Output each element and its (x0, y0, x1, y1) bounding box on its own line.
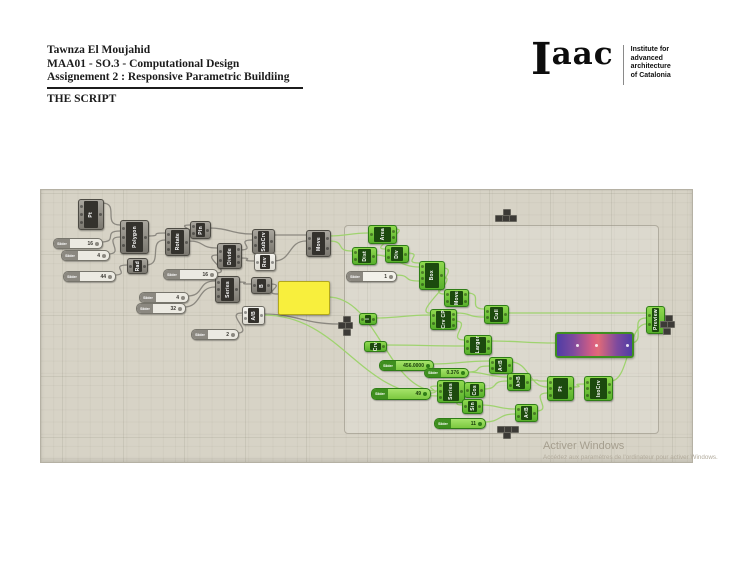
input-port[interactable] (308, 237, 311, 240)
slider-cap: Slider (347, 272, 363, 281)
output-port[interactable] (143, 265, 146, 268)
iaac-logo: I aac Institute foradvancedarchitectureo… (531, 43, 671, 85)
output-port[interactable] (460, 390, 463, 393)
node-div[interactable]: Div (385, 245, 409, 263)
header-divider (47, 87, 303, 89)
input-port[interactable] (122, 236, 125, 239)
node-label: Pln (198, 226, 204, 235)
number-slider[interactable]: Slider32 (136, 303, 186, 314)
slider-cap: Slider (164, 270, 180, 279)
input-port[interactable] (244, 311, 247, 314)
input-port[interactable] (421, 265, 424, 268)
output-port[interactable] (508, 364, 511, 367)
node-label: Move (316, 237, 322, 251)
node-rotate[interactable]: Rotate (165, 228, 190, 256)
input-port[interactable] (439, 390, 442, 393)
input-port[interactable] (387, 249, 390, 252)
output-port[interactable] (206, 229, 209, 232)
node-label: Sin (470, 402, 476, 411)
gradient-component[interactable] (555, 332, 634, 358)
output-port[interactable] (237, 255, 240, 258)
output-port[interactable] (569, 387, 572, 390)
input-port[interactable] (80, 221, 83, 224)
node-label: Divide (227, 248, 233, 265)
output-port[interactable] (608, 391, 611, 394)
node-crv-cp[interactable]: Crv CP (430, 309, 457, 330)
input-port[interactable] (122, 244, 125, 247)
slider-grip[interactable] (423, 392, 427, 396)
input-port[interactable] (464, 405, 467, 408)
input-port[interactable] (586, 394, 589, 397)
slider-cap: Slider (62, 251, 78, 260)
input-port[interactable] (192, 225, 195, 228)
input-port[interactable] (254, 244, 257, 247)
input-port[interactable] (219, 250, 222, 253)
input-port[interactable] (387, 256, 390, 259)
slider-grip[interactable] (210, 273, 214, 277)
slider-grip[interactable] (178, 307, 182, 311)
output-port[interactable] (267, 284, 270, 287)
node-label: I (365, 318, 371, 320)
collapsed-component[interactable] (503, 432, 511, 439)
node-label: Dist (362, 251, 368, 262)
node-label: Polygon (132, 226, 138, 248)
slider-grip[interactable] (231, 333, 235, 337)
number-slider[interactable]: Slider4 (61, 250, 110, 261)
input-port[interactable] (432, 314, 435, 317)
node-crv[interactable]: Crv (364, 341, 387, 352)
output-port[interactable] (392, 236, 395, 239)
input-port[interactable] (129, 265, 132, 268)
input-port[interactable] (549, 381, 552, 384)
input-port[interactable] (122, 227, 125, 230)
author-name: Tawnza El Moujahid (47, 44, 289, 58)
input-port[interactable] (308, 247, 311, 250)
iaac-wordmark: I aac (531, 43, 614, 77)
gradient-handle[interactable] (626, 344, 629, 347)
node-label: Preview (653, 309, 659, 330)
output-port[interactable] (504, 313, 507, 316)
node-a-b[interactable]: A<B (489, 357, 513, 374)
output-port[interactable] (440, 274, 443, 277)
output-port[interactable] (372, 255, 375, 258)
output-port[interactable] (487, 347, 490, 350)
input-port[interactable] (648, 323, 651, 326)
input-port[interactable] (486, 316, 489, 319)
slider-grip[interactable] (478, 422, 482, 426)
number-slider[interactable]: Slider16 (163, 269, 218, 280)
slider-grip[interactable] (108, 275, 112, 279)
header-block: Tawnza El Moujahid MAA01 - SO.3 - Comput… (47, 44, 289, 85)
collapsed-component[interactable] (509, 215, 517, 222)
node-pln[interactable]: Pln (190, 221, 211, 239)
number-slider[interactable]: Slider16 (53, 238, 103, 249)
node-rev[interactable]: Rev (254, 253, 276, 271)
input-port[interactable] (256, 261, 259, 264)
node-label: Pt (88, 212, 94, 218)
assignment-title: Assignement 2 : Responsive Parametric Bu… (47, 71, 289, 85)
number-slider[interactable]: Slider4 (139, 292, 189, 303)
output-port[interactable] (99, 213, 102, 216)
node-label: Series (225, 281, 231, 298)
input-port[interactable] (439, 384, 442, 387)
node-label: Series (448, 383, 454, 400)
node-label: Rotate (175, 233, 181, 250)
input-port[interactable] (586, 387, 589, 390)
output-port[interactable] (237, 261, 240, 264)
input-port[interactable] (517, 408, 520, 411)
node-divide[interactable]: Divide (217, 243, 242, 269)
node-label: Rad (135, 261, 141, 271)
output-port[interactable] (464, 293, 467, 296)
slider-grip[interactable] (95, 242, 99, 246)
slider-cap: Slider (140, 293, 156, 302)
logo-divider (623, 45, 624, 85)
input-port[interactable] (549, 394, 552, 397)
input-port[interactable] (217, 281, 220, 284)
output-port[interactable] (185, 241, 188, 244)
node-polygon[interactable]: Polygon (120, 220, 149, 254)
input-port[interactable] (466, 340, 469, 343)
node-label: Area (380, 228, 386, 240)
node-label: Move (454, 291, 460, 305)
input-port[interactable] (509, 377, 512, 380)
node-series[interactable]: Series (215, 276, 240, 303)
input-port[interactable] (254, 236, 257, 239)
input-port[interactable] (432, 322, 435, 325)
output-port[interactable] (608, 383, 611, 386)
node-pt[interactable]: Pt (547, 376, 574, 401)
collapsed-component[interactable] (345, 322, 353, 329)
input-port[interactable] (446, 300, 449, 303)
input-port[interactable] (80, 213, 83, 216)
slider-grip[interactable] (181, 296, 185, 300)
input-port[interactable] (586, 381, 589, 384)
slider-cap: Slider (54, 239, 70, 248)
node-rad[interactable]: Rad (127, 258, 148, 274)
slider-cap: Slider (372, 389, 388, 399)
input-port[interactable] (167, 241, 170, 244)
input-port[interactable] (466, 347, 469, 350)
node-larger[interactable]: Larger (464, 335, 492, 355)
number-slider[interactable]: Slider49 (371, 388, 431, 400)
logo-letters-aac: aac (552, 43, 614, 65)
input-port[interactable] (167, 248, 170, 251)
output-port[interactable] (271, 261, 274, 264)
node-label: A<B (498, 360, 504, 371)
input-port[interactable] (370, 233, 373, 236)
node-move[interactable]: Move (306, 230, 331, 257)
node-label: Box (429, 270, 435, 280)
output-port[interactable] (270, 240, 273, 243)
slider-cap: Slider (192, 330, 208, 339)
input-port[interactable] (517, 415, 520, 418)
node-label: A/B (251, 311, 257, 321)
output-port[interactable] (464, 300, 467, 303)
node-label: SubCrv (261, 232, 267, 252)
document-page: Tawnza El Moujahid MAA01 - SO.3 - Comput… (0, 0, 730, 572)
node-label: A<B (524, 407, 530, 418)
input-port[interactable] (167, 233, 170, 236)
slider-grip[interactable] (426, 364, 430, 368)
output-port[interactable] (487, 340, 490, 343)
output-port[interactable] (452, 313, 455, 316)
input-port[interactable] (192, 232, 195, 235)
output-port[interactable] (392, 230, 395, 233)
node-a-b[interactable]: A>B (507, 373, 531, 391)
output-port[interactable] (235, 288, 238, 291)
input-port[interactable] (509, 384, 512, 387)
output-port[interactable] (382, 345, 385, 348)
node-isocrv[interactable]: IsoCrv (584, 376, 613, 401)
node-label: Div (394, 250, 400, 259)
output-port[interactable] (372, 318, 375, 321)
node-label: B (259, 284, 265, 288)
activate-windows-subtext: Accédez aux paramètres de l'ordinateur p… (543, 454, 718, 461)
output-port[interactable] (452, 324, 455, 327)
panel-note[interactable] (278, 281, 330, 315)
node-cull[interactable]: Cull (484, 305, 509, 324)
logo-letter-i: I (531, 43, 552, 77)
slider-cap: Slider (64, 272, 80, 281)
gradient-handle[interactable] (595, 344, 598, 347)
activate-windows-watermark: Activer Windows (543, 440, 624, 452)
slider-cap: Slider (435, 419, 451, 428)
node-label: Cull (494, 309, 500, 320)
input-port[interactable] (421, 277, 424, 280)
input-port[interactable] (217, 295, 220, 298)
node-label: Rev (262, 257, 268, 267)
slider-cap: Slider (380, 361, 396, 370)
node-label: Larger (475, 336, 481, 353)
collapsed-component[interactable] (511, 426, 519, 433)
output-port[interactable] (480, 389, 483, 392)
node-area[interactable]: Area (368, 225, 397, 244)
output-port[interactable] (526, 381, 529, 384)
input-port[interactable] (80, 205, 83, 208)
input-port[interactable] (421, 271, 424, 274)
number-slider[interactable]: Slider0.376 (424, 368, 469, 378)
input-port[interactable] (354, 258, 357, 261)
slider-cap: Slider (137, 304, 153, 313)
output-port[interactable] (144, 236, 147, 239)
input-port[interactable] (466, 389, 469, 392)
node-b[interactable]: B (251, 277, 272, 294)
output-port[interactable] (326, 237, 329, 240)
node-series[interactable]: Series (437, 380, 465, 403)
input-port[interactable] (491, 367, 494, 370)
node-move[interactable]: Move (444, 289, 469, 307)
collapsed-component[interactable] (667, 321, 675, 328)
slider-cap: Slider (425, 369, 441, 377)
input-port[interactable] (491, 361, 494, 364)
input-port[interactable] (361, 318, 364, 321)
node-sin[interactable]: Sin (462, 399, 483, 414)
output-port[interactable] (237, 248, 240, 251)
output-port[interactable] (478, 405, 481, 408)
course-title: MAA01 - SO.3 - Computational Design (47, 58, 289, 72)
output-port[interactable] (452, 318, 455, 321)
collapsed-component[interactable] (663, 328, 671, 335)
page-title: THE SCRIPT (47, 93, 116, 105)
input-port[interactable] (354, 251, 357, 254)
node-dist[interactable]: Dist (352, 247, 377, 265)
node-label: Cos (472, 385, 478, 395)
input-port[interactable] (253, 284, 256, 287)
input-port[interactable] (549, 387, 552, 390)
node-cos[interactable]: Cos (464, 382, 485, 398)
slider-grip[interactable] (102, 254, 106, 258)
slider-grip[interactable] (389, 275, 393, 279)
input-port[interactable] (244, 317, 247, 320)
node-a-b[interactable]: A/B (242, 306, 265, 325)
number-slider[interactable]: Slider44 (63, 271, 116, 282)
node-label: Pt (558, 386, 564, 392)
node-pt[interactable]: Pt (78, 199, 104, 230)
input-port[interactable] (217, 288, 220, 291)
node-label: IsoCrv (596, 380, 602, 397)
number-slider[interactable]: Slider1 (346, 271, 397, 282)
output-port[interactable] (533, 412, 536, 415)
node-a-b[interactable]: A<B (515, 404, 538, 422)
number-slider[interactable]: Slider2 (191, 329, 239, 340)
input-port[interactable] (439, 396, 442, 399)
output-port[interactable] (260, 314, 263, 317)
slider-grip[interactable] (461, 371, 465, 375)
input-port[interactable] (219, 259, 222, 262)
node-i[interactable]: I (359, 313, 377, 325)
output-port[interactable] (404, 253, 407, 256)
input-port[interactable] (648, 314, 651, 317)
input-port[interactable] (421, 283, 424, 286)
node-box[interactable]: Box (419, 261, 445, 290)
number-slider[interactable]: Slider11 (434, 418, 486, 429)
input-port[interactable] (486, 310, 489, 313)
collapsed-component[interactable] (343, 329, 351, 336)
node-subcrv[interactable]: SubCrv (252, 229, 275, 254)
logo-tagline: Institute foradvancedarchitectureof Cata… (631, 46, 671, 80)
input-port[interactable] (446, 293, 449, 296)
output-port[interactable] (326, 247, 329, 250)
gradient-handle[interactable] (576, 344, 579, 347)
node-label: A>B (516, 376, 522, 387)
node-label: Crv (373, 342, 379, 351)
node-label: Crv CP (441, 310, 447, 328)
